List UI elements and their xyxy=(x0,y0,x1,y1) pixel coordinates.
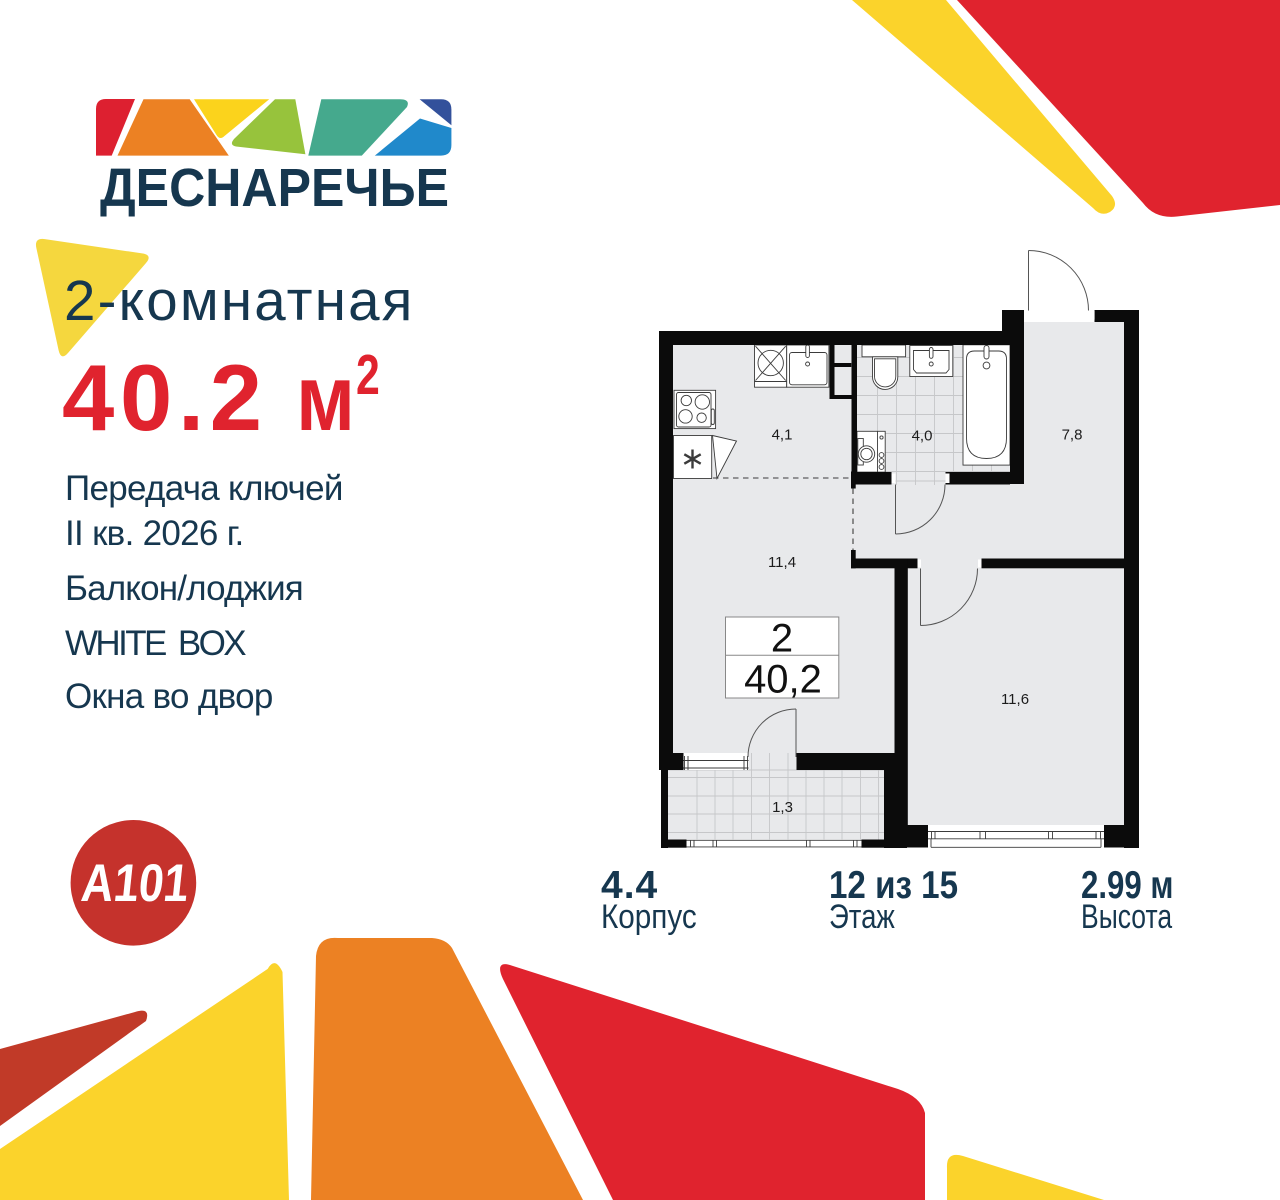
svg-text:4,0: 4,0 xyxy=(912,428,933,445)
svg-text:40,2: 40,2 xyxy=(744,658,822,702)
svg-text:4,1: 4,1 xyxy=(772,426,793,443)
svg-text:11,4: 11,4 xyxy=(768,554,796,571)
svg-text:A101: A101 xyxy=(79,854,192,913)
svg-text:11,6: 11,6 xyxy=(1001,691,1029,708)
svg-text:2: 2 xyxy=(771,617,793,661)
svg-text:7,8: 7,8 xyxy=(1062,426,1083,443)
svg-text:1,3: 1,3 xyxy=(772,799,793,816)
svg-text:ДЕСНАРЕЧЬЕ: ДЕСНАРЕЧЬЕ xyxy=(100,158,449,218)
